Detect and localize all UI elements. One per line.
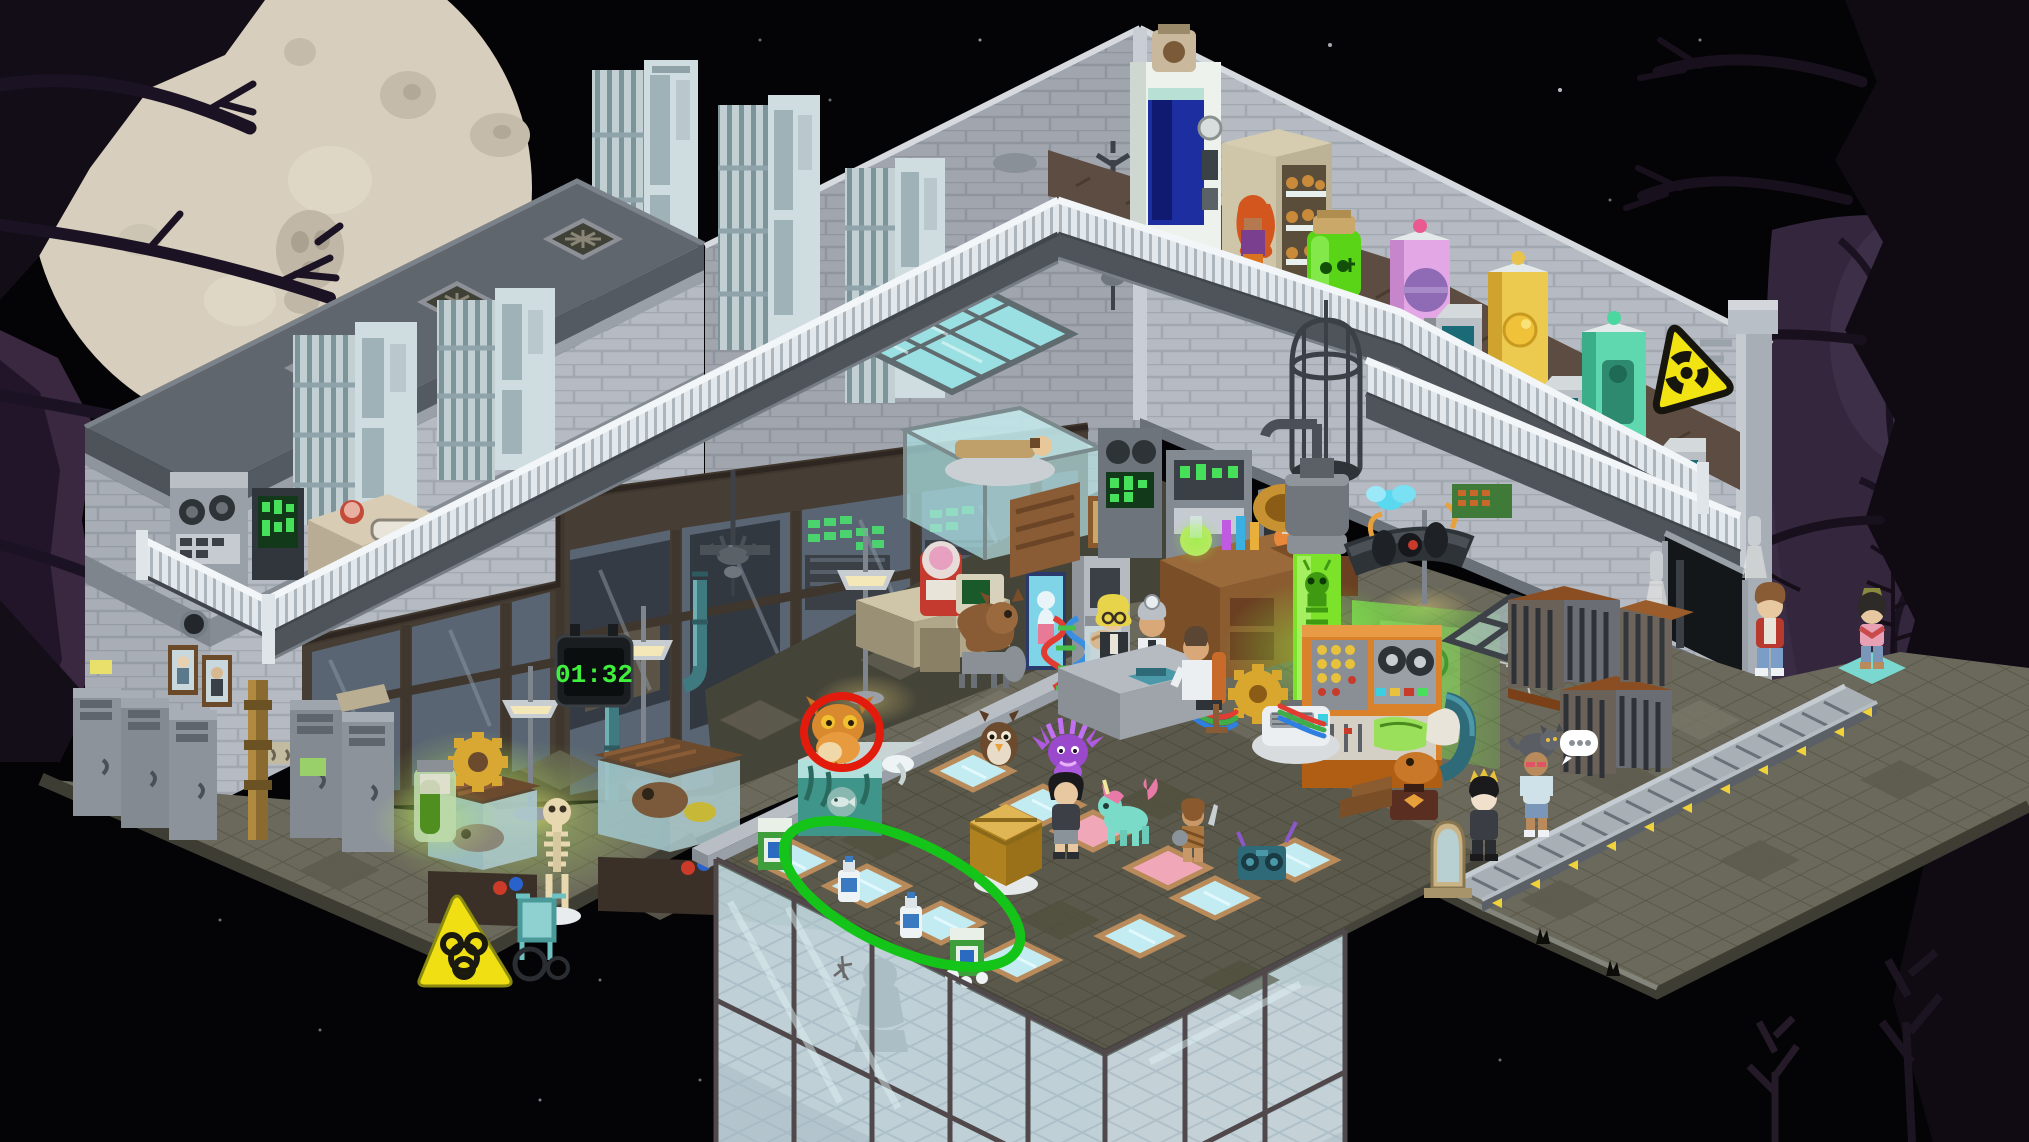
svg-text:01:32: 01:32	[555, 660, 633, 690]
